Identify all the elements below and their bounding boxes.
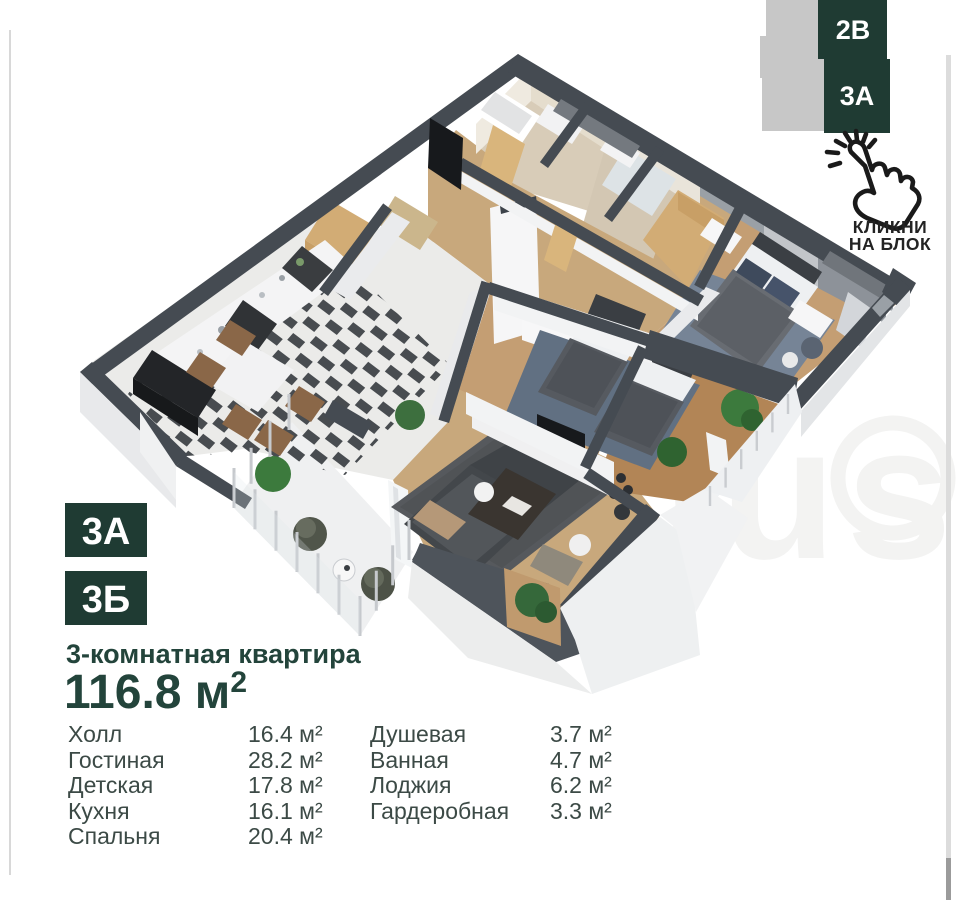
svg-text:3.7 м²: 3.7 м²: [550, 721, 612, 747]
svg-text:3Б: 3Б: [82, 579, 130, 621]
svg-text:3.3 м²: 3.3 м²: [550, 798, 612, 824]
svg-text:Лоджия: Лоджия: [370, 772, 452, 798]
svg-text:2В: 2В: [836, 15, 871, 45]
svg-text:20.4 м²: 20.4 м²: [248, 823, 323, 849]
svg-text:Душевая: Душевая: [370, 721, 466, 747]
svg-text:16.1 м²: 16.1 м²: [248, 798, 323, 824]
svg-text:Гардеробная: Гардеробная: [370, 798, 509, 824]
svg-text:6.2 м²: 6.2 м²: [550, 772, 612, 798]
svg-text:Спальня: Спальня: [68, 823, 160, 849]
svg-text:Ванная: Ванная: [370, 747, 449, 773]
svg-text:3А: 3А: [82, 511, 131, 553]
svg-text:17.8 м²: 17.8 м²: [248, 772, 323, 798]
svg-text:16.4 м²: 16.4 м²: [248, 721, 323, 747]
svg-text:4.7 м²: 4.7 м²: [550, 747, 612, 773]
svg-text:НА БЛОК: НА БЛОК: [849, 234, 931, 254]
svg-text:28.2 м²: 28.2 м²: [248, 747, 323, 773]
svg-text:Холл: Холл: [68, 721, 122, 747]
svg-text:116.8 м2: 116.8 м2: [64, 666, 247, 719]
svg-text:3А: 3А: [840, 81, 875, 111]
svg-text:Детская: Детская: [68, 772, 153, 798]
svg-text:Кухня: Кухня: [68, 798, 130, 824]
svg-text:3-комнатная квартира: 3-комнатная квартира: [66, 639, 362, 669]
svg-text:Гостиная: Гостиная: [68, 747, 165, 773]
